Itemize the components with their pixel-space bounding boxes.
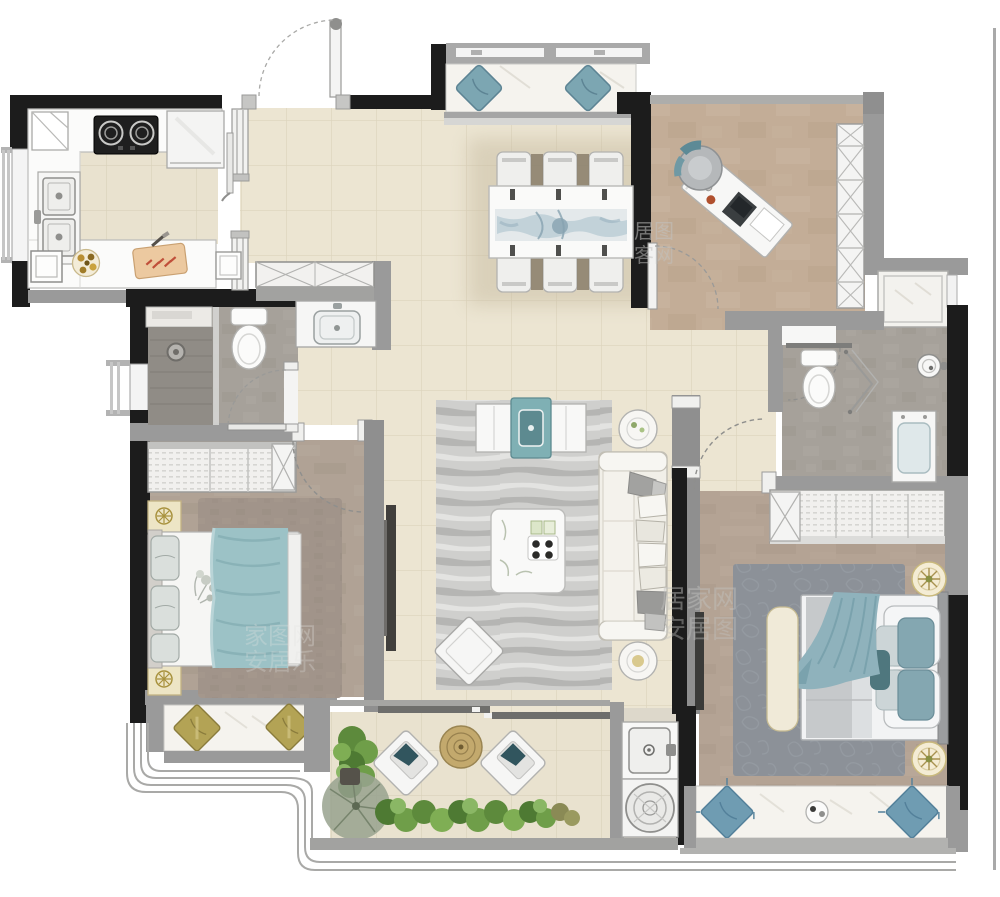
svg-text:居图: 居图	[634, 221, 674, 243]
svg-text:家图网: 家图网	[244, 623, 316, 650]
svg-text:安居乐: 安居乐	[244, 649, 316, 676]
svg-text:居家网: 居家网	[660, 584, 738, 614]
svg-text:客网: 客网	[634, 244, 674, 267]
svg-text:安居图: 安居图	[660, 614, 738, 644]
